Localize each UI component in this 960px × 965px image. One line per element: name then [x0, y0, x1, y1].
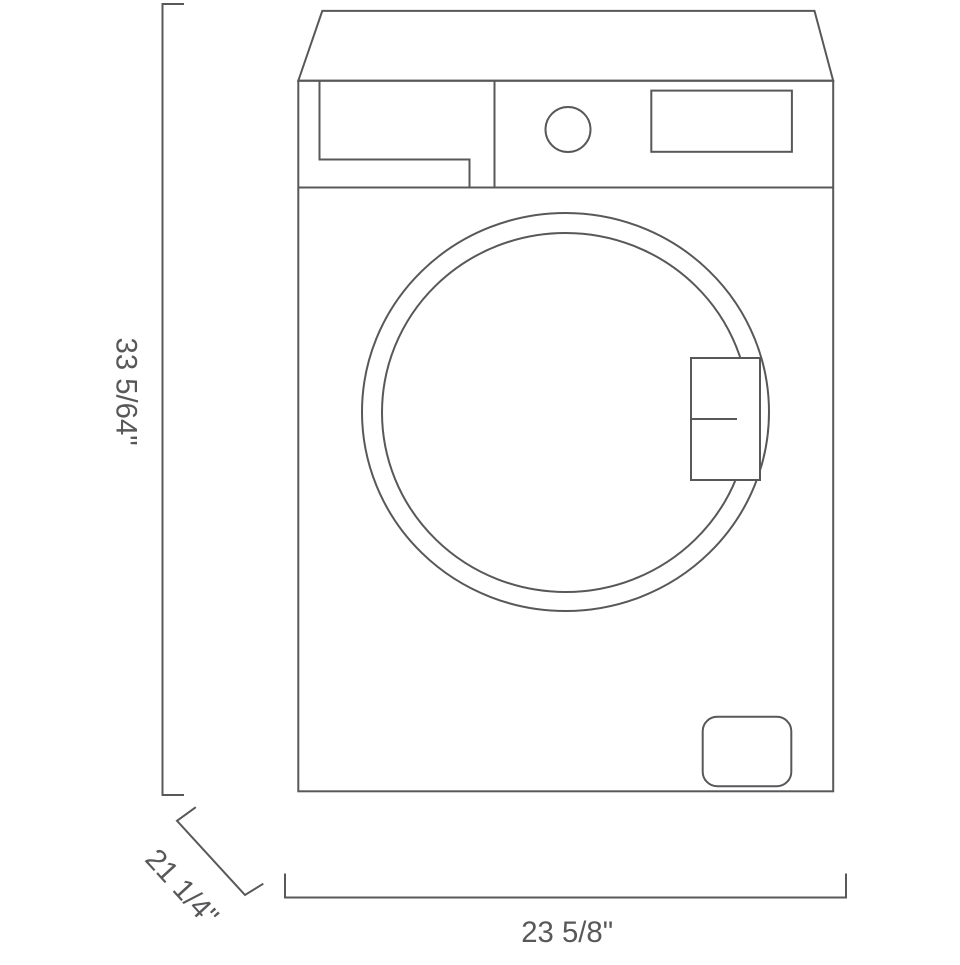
svg-text:33 5/64": 33 5/64"	[110, 338, 143, 446]
svg-text:23 5/8": 23 5/8"	[521, 916, 613, 949]
